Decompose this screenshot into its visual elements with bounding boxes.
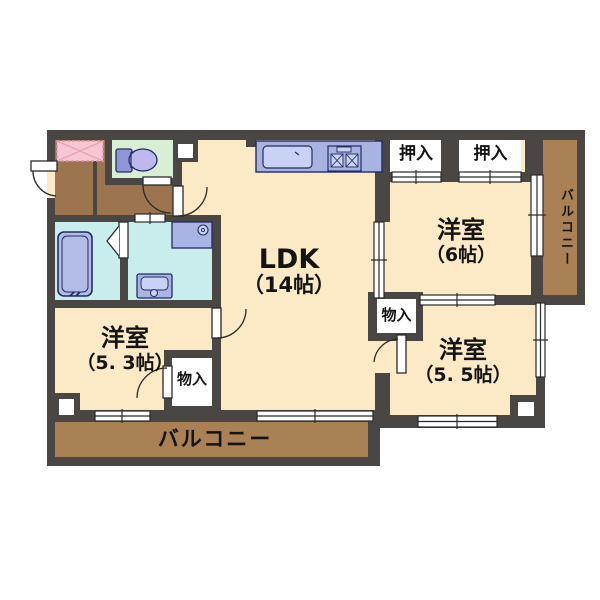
- floor-plan: LDK （14帖） 洋室 （6帖） 洋室 （5. 5帖） 洋室 （5. 3帖） …: [0, 0, 600, 600]
- balcony-east-label: バルコニー: [550, 158, 572, 298]
- room-se-name: 洋室: [393, 338, 533, 363]
- pipe-space-se-box: [518, 402, 534, 416]
- wall-toilet-left: [105, 140, 112, 178]
- wall-top: [47, 130, 585, 140]
- room-ldk-size: （14帖）: [214, 274, 364, 296]
- closet-oshiire-left-label: 押入: [390, 146, 442, 164]
- closet-monoiri-se-label: 物入: [375, 308, 418, 324]
- wall-hall-washroom: [47, 215, 221, 222]
- closet-monoiri-sw-label: 物入: [170, 372, 214, 388]
- wall-se-bottom: [378, 415, 545, 428]
- room-sw-name: 洋室: [50, 326, 200, 351]
- wall-ldk-east-low: [375, 373, 390, 415]
- wall-left-upper: [47, 140, 55, 168]
- wall-toilet-bottom: [105, 178, 182, 185]
- wall-right-outer: [577, 130, 585, 305]
- toilet-room-floor: [112, 140, 173, 178]
- bathroom-floor: [55, 222, 128, 300]
- wall-balcony-south-bottom: [47, 457, 380, 466]
- wall-ne-right-top: [525, 140, 543, 175]
- wall-bath-washroom: [120, 258, 128, 303]
- genkan-step-line: [93, 161, 97, 215]
- room-ldk-name: LDK: [214, 246, 364, 274]
- room-ne-name: 洋室: [391, 218, 531, 243]
- washroom-floor: [128, 222, 213, 300]
- wall-kitchen-stub: [246, 140, 256, 147]
- pipe-space-sw-box: [59, 399, 74, 415]
- wall-balcony-south-right: [368, 410, 380, 466]
- room-se-size: （5. 5帖）: [393, 366, 533, 386]
- room-ne-size: （6帖）: [391, 246, 531, 266]
- balcony-south-label: バルコニー: [90, 428, 340, 450]
- wall-ldk-east-top: [375, 140, 390, 222]
- wall-bath-bottom: [47, 300, 221, 308]
- shoe-cabinet-box: [178, 144, 193, 158]
- closet-oshiire-right-label: 押入: [459, 146, 522, 164]
- wall-oshiire-bottom: [390, 172, 533, 182]
- wall-south-rooms: [47, 410, 390, 422]
